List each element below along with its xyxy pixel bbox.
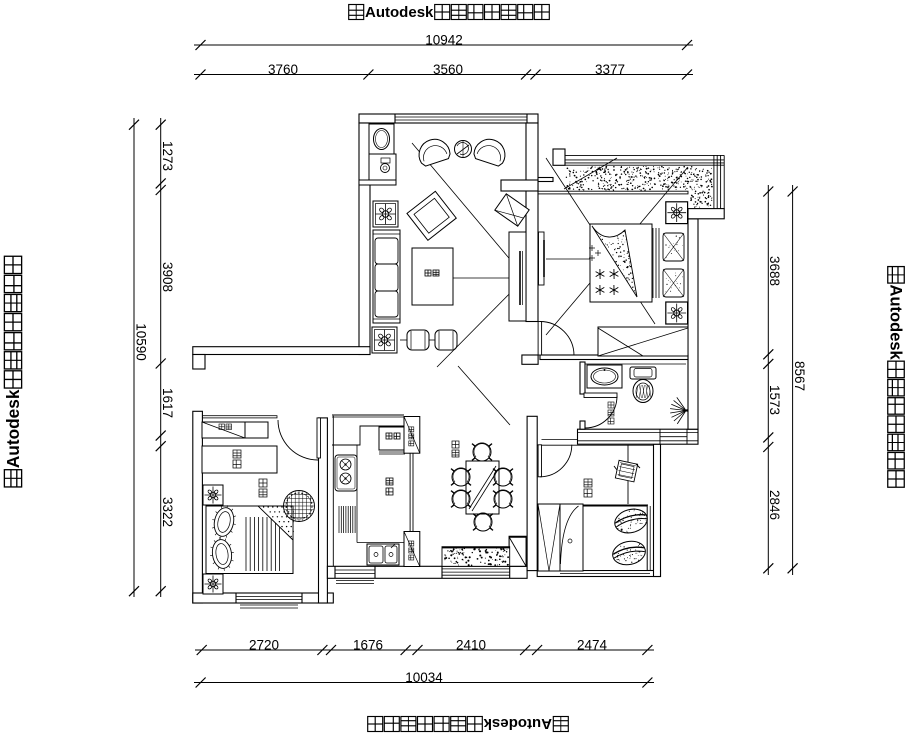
- svg-text:1617: 1617: [160, 388, 175, 418]
- svg-text:1676: 1676: [353, 637, 383, 652]
- svg-text:3760: 3760: [268, 62, 298, 77]
- svg-text:3560: 3560: [433, 62, 463, 77]
- svg-text:10942: 10942: [425, 32, 463, 47]
- svg-text:10590: 10590: [134, 323, 149, 361]
- svg-text:3322: 3322: [160, 497, 175, 527]
- svg-text:3688: 3688: [767, 256, 782, 286]
- svg-text:1573: 1573: [767, 385, 782, 415]
- svg-text:1273: 1273: [160, 141, 175, 171]
- svg-text:8567: 8567: [792, 361, 807, 391]
- svg-text:10034: 10034: [405, 670, 443, 685]
- svg-text:2720: 2720: [249, 637, 279, 652]
- svg-text:Autodesk: Autodesk: [3, 389, 23, 468]
- svg-text:3377: 3377: [595, 62, 625, 77]
- svg-text:Autodesk: Autodesk: [483, 715, 552, 732]
- svg-text:Autodesk: Autodesk: [365, 4, 434, 21]
- svg-text:2410: 2410: [456, 637, 486, 652]
- svg-text:3908: 3908: [160, 262, 175, 292]
- svg-text:2846: 2846: [767, 490, 782, 520]
- svg-text:Autodesk: Autodesk: [887, 285, 905, 361]
- svg-text:2474: 2474: [577, 637, 608, 652]
